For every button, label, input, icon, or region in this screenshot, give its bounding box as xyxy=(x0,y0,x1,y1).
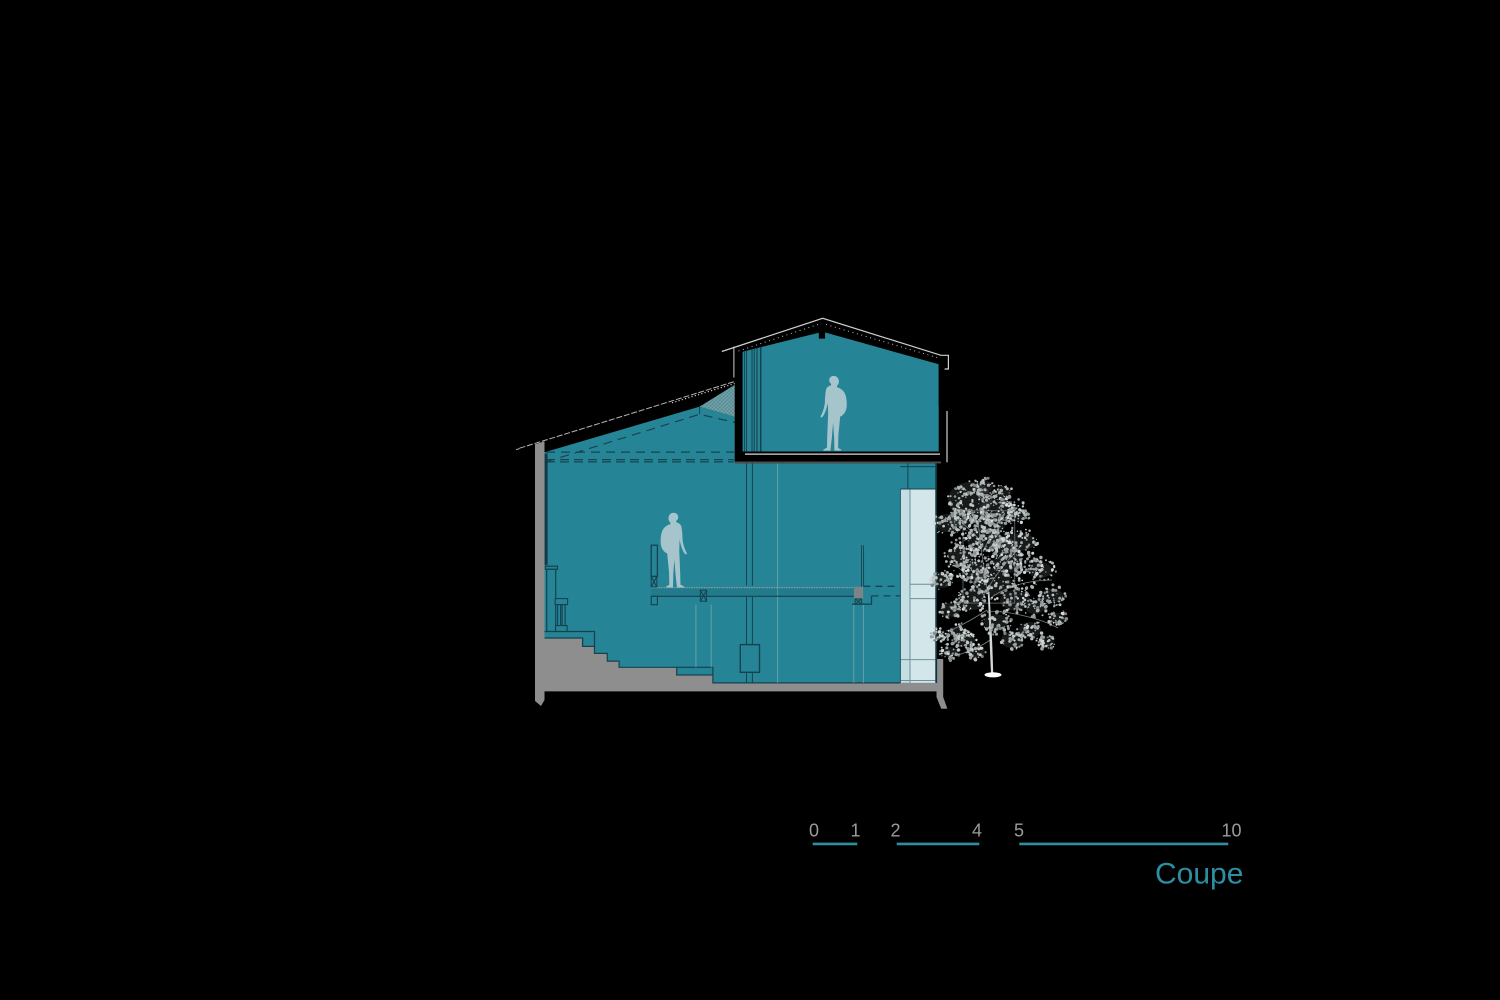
svg-text:1: 1 xyxy=(850,821,860,841)
svg-text:4: 4 xyxy=(972,821,982,841)
svg-text:Coupe: Coupe xyxy=(1155,858,1243,891)
svg-text:0: 0 xyxy=(809,821,819,841)
svg-text:5: 5 xyxy=(1014,821,1024,841)
svg-text:10: 10 xyxy=(1221,821,1241,841)
svg-text:2: 2 xyxy=(890,821,900,841)
